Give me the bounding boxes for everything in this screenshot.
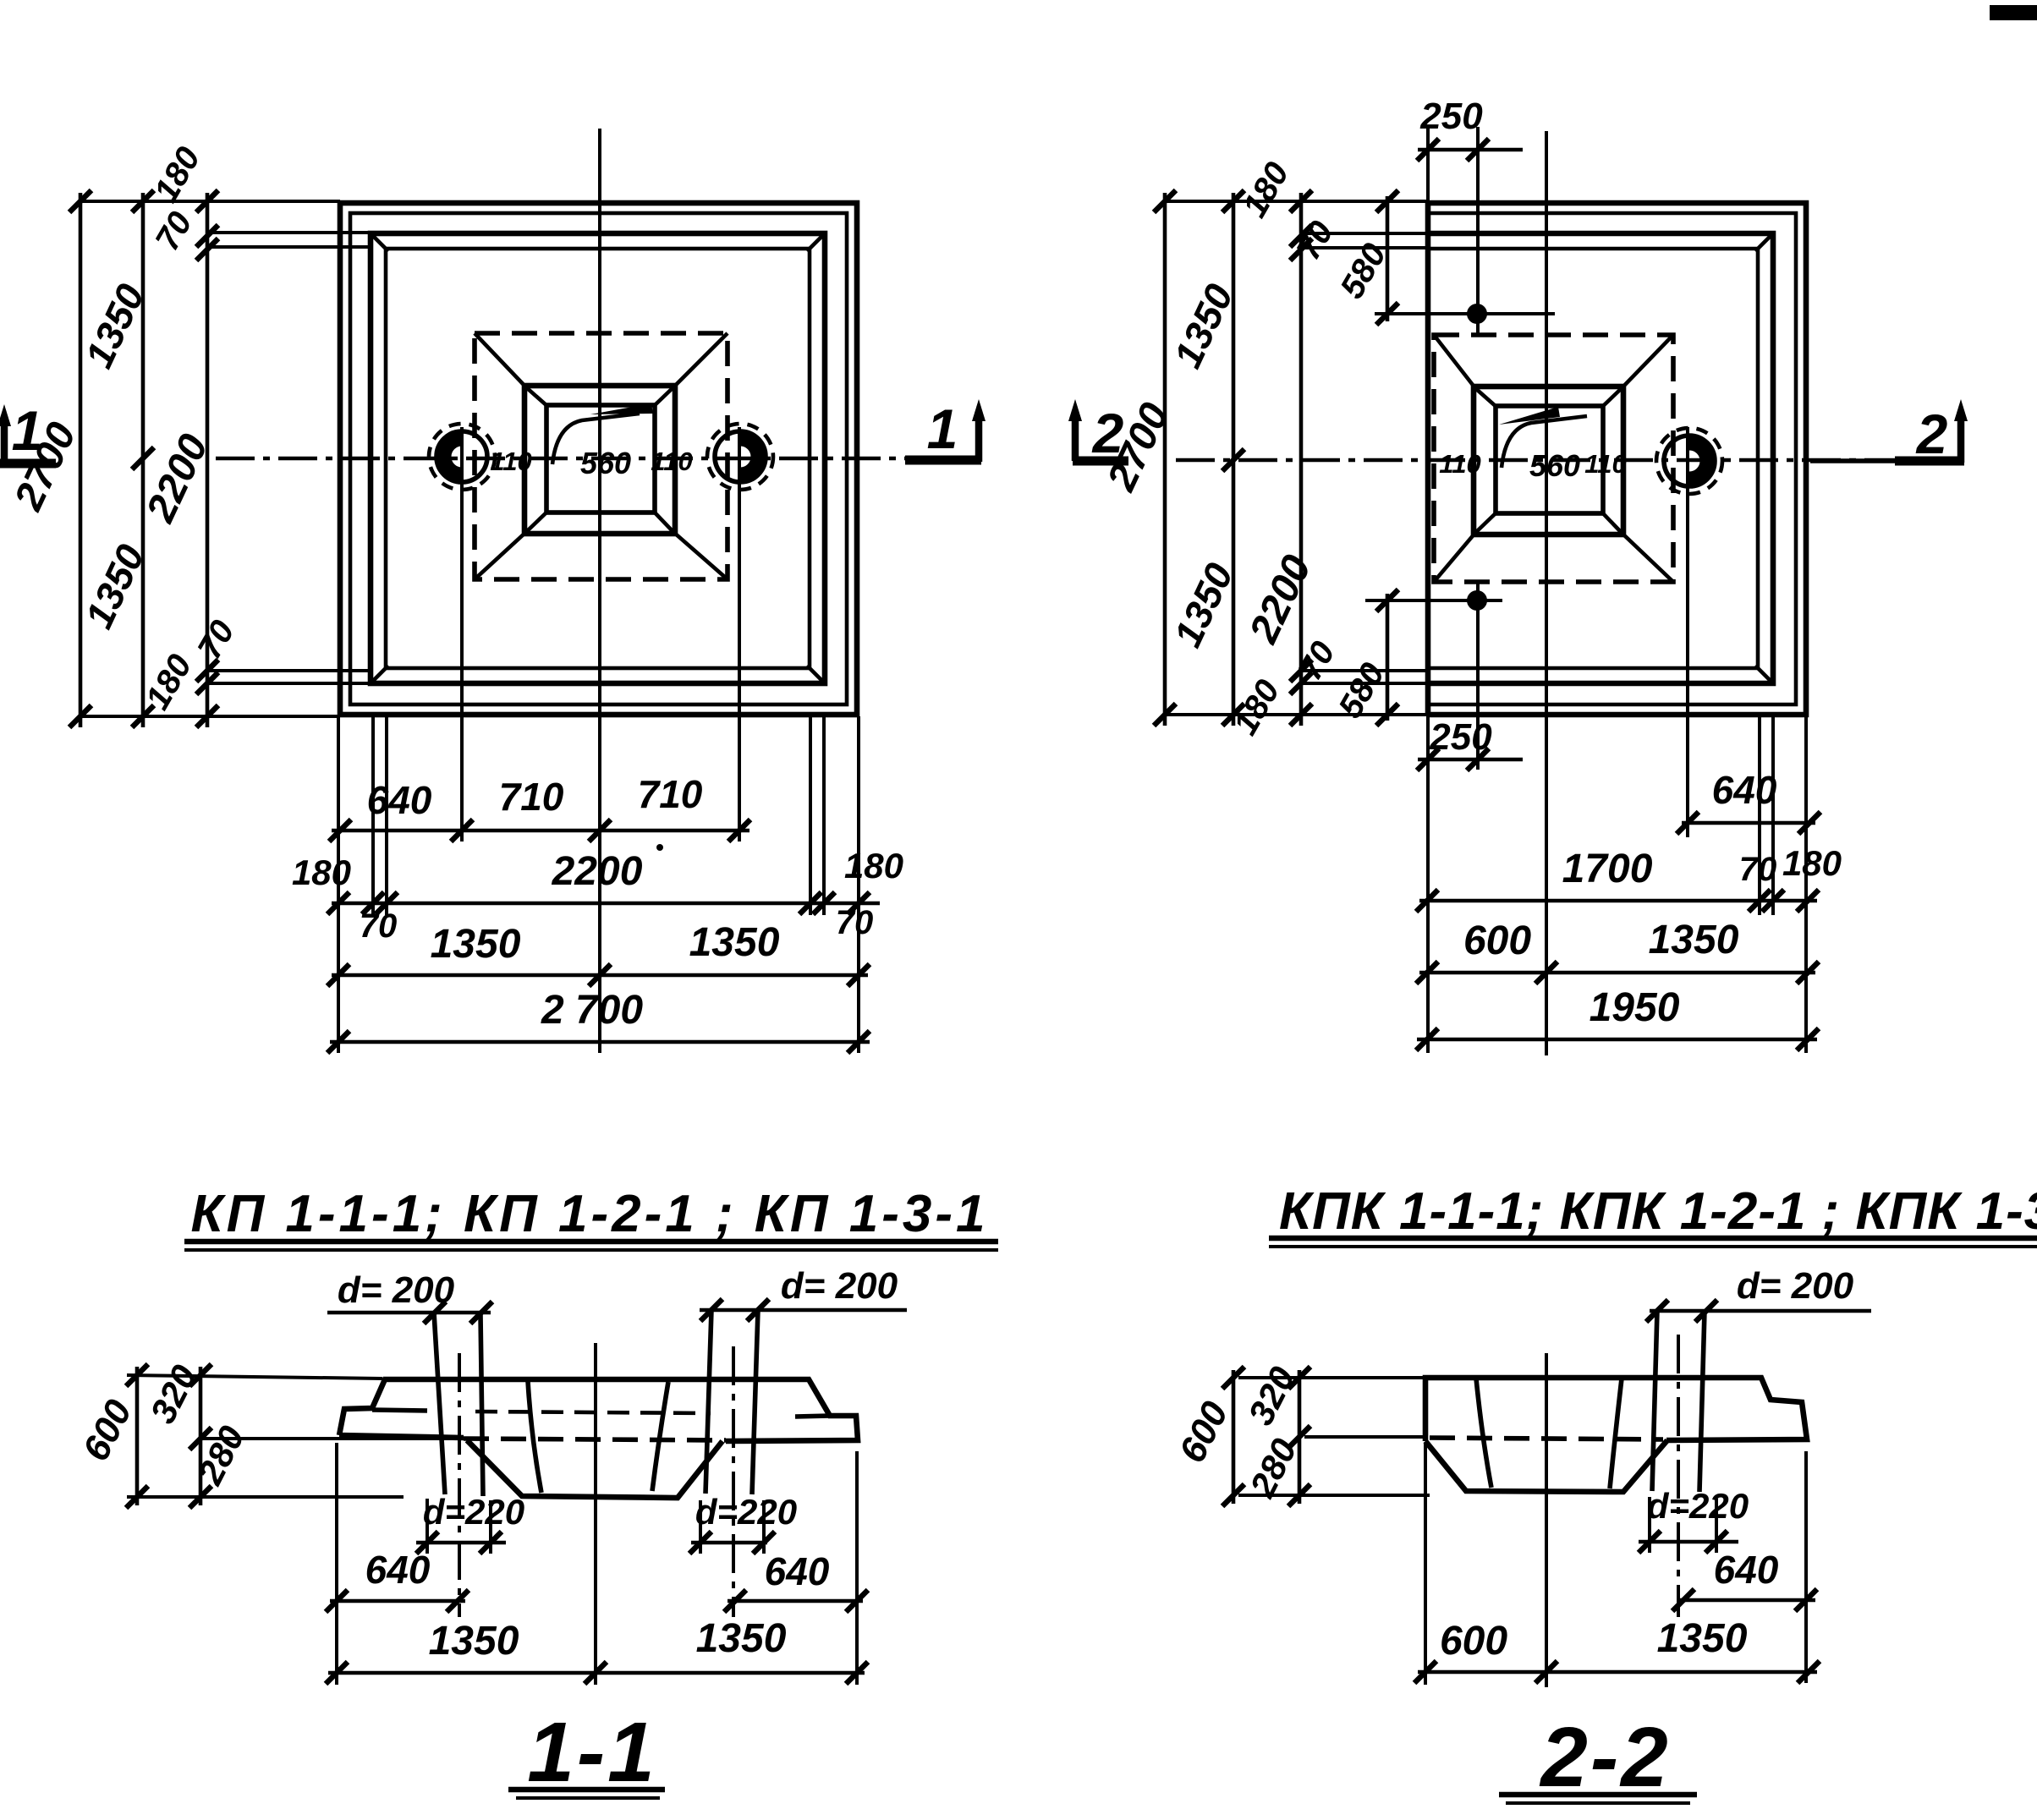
- svg-text:560: 560: [580, 446, 631, 480]
- svg-text:d=220: d=220: [423, 1492, 524, 1532]
- svg-text:110: 110: [1439, 449, 1480, 479]
- svg-text:250: 250: [1429, 716, 1492, 758]
- svg-text:1350: 1350: [1649, 918, 1739, 962]
- svg-text:2-2: 2-2: [1539, 1710, 1671, 1805]
- svg-text:1-1: 1-1: [527, 1705, 657, 1800]
- svg-text:70: 70: [1739, 851, 1777, 888]
- svg-text:2: 2: [1915, 403, 1948, 465]
- svg-text:1: 1: [927, 397, 958, 460]
- svg-text:640: 640: [1714, 1548, 1779, 1592]
- svg-text:710: 710: [638, 772, 703, 816]
- svg-text:2: 2: [1091, 402, 1124, 464]
- svg-text:1350: 1350: [696, 1616, 787, 1661]
- svg-text:d=220: d=220: [1647, 1486, 1749, 1526]
- svg-text:600: 600: [1440, 1619, 1507, 1664]
- svg-text:180: 180: [1782, 843, 1842, 883]
- svg-text:d=220: d=220: [695, 1492, 797, 1532]
- svg-text:640: 640: [1712, 768, 1777, 812]
- svg-text:d= 200: d= 200: [1737, 1265, 1854, 1307]
- svg-text:70: 70: [836, 904, 874, 941]
- svg-text:600: 600: [1463, 918, 1531, 963]
- svg-text:1350: 1350: [429, 1619, 519, 1664]
- svg-text:70: 70: [360, 907, 398, 945]
- svg-text:250: 250: [1419, 96, 1483, 137]
- svg-text:d= 200: d= 200: [781, 1265, 898, 1307]
- svg-text:1700: 1700: [1562, 847, 1653, 891]
- svg-text:640: 640: [367, 778, 432, 822]
- svg-text:640: 640: [765, 1549, 830, 1593]
- svg-text:1350: 1350: [431, 922, 521, 967]
- svg-text:d= 200: d= 200: [338, 1269, 455, 1311]
- svg-text:2 700: 2 700: [541, 988, 643, 1033]
- svg-text:180: 180: [844, 846, 903, 885]
- svg-text:560: 560: [1529, 448, 1580, 483]
- svg-text:1350: 1350: [1657, 1616, 1748, 1661]
- svg-text:КП 1-1-1; КП 1-2-1 ; КП 1-3-1: КП 1-1-1; КП 1-2-1 ; КП 1-3-1: [191, 1185, 989, 1243]
- svg-text:640: 640: [365, 1548, 431, 1592]
- svg-text:710: 710: [499, 775, 564, 819]
- svg-text:110: 110: [1584, 449, 1626, 479]
- svg-text:180: 180: [292, 852, 351, 892]
- svg-text:110: 110: [490, 447, 531, 476]
- svg-text:2200: 2200: [552, 849, 643, 894]
- svg-text:1: 1: [12, 399, 43, 462]
- svg-text:1350: 1350: [689, 920, 780, 965]
- svg-text:110: 110: [651, 447, 692, 476]
- svg-text:КПК 1-1-1; КПК 1-2-1 ; КПК 1-3: КПК 1-1-1; КПК 1-2-1 ; КПК 1-3-1: [1279, 1182, 2037, 1241]
- svg-text:1950: 1950: [1590, 985, 1680, 1030]
